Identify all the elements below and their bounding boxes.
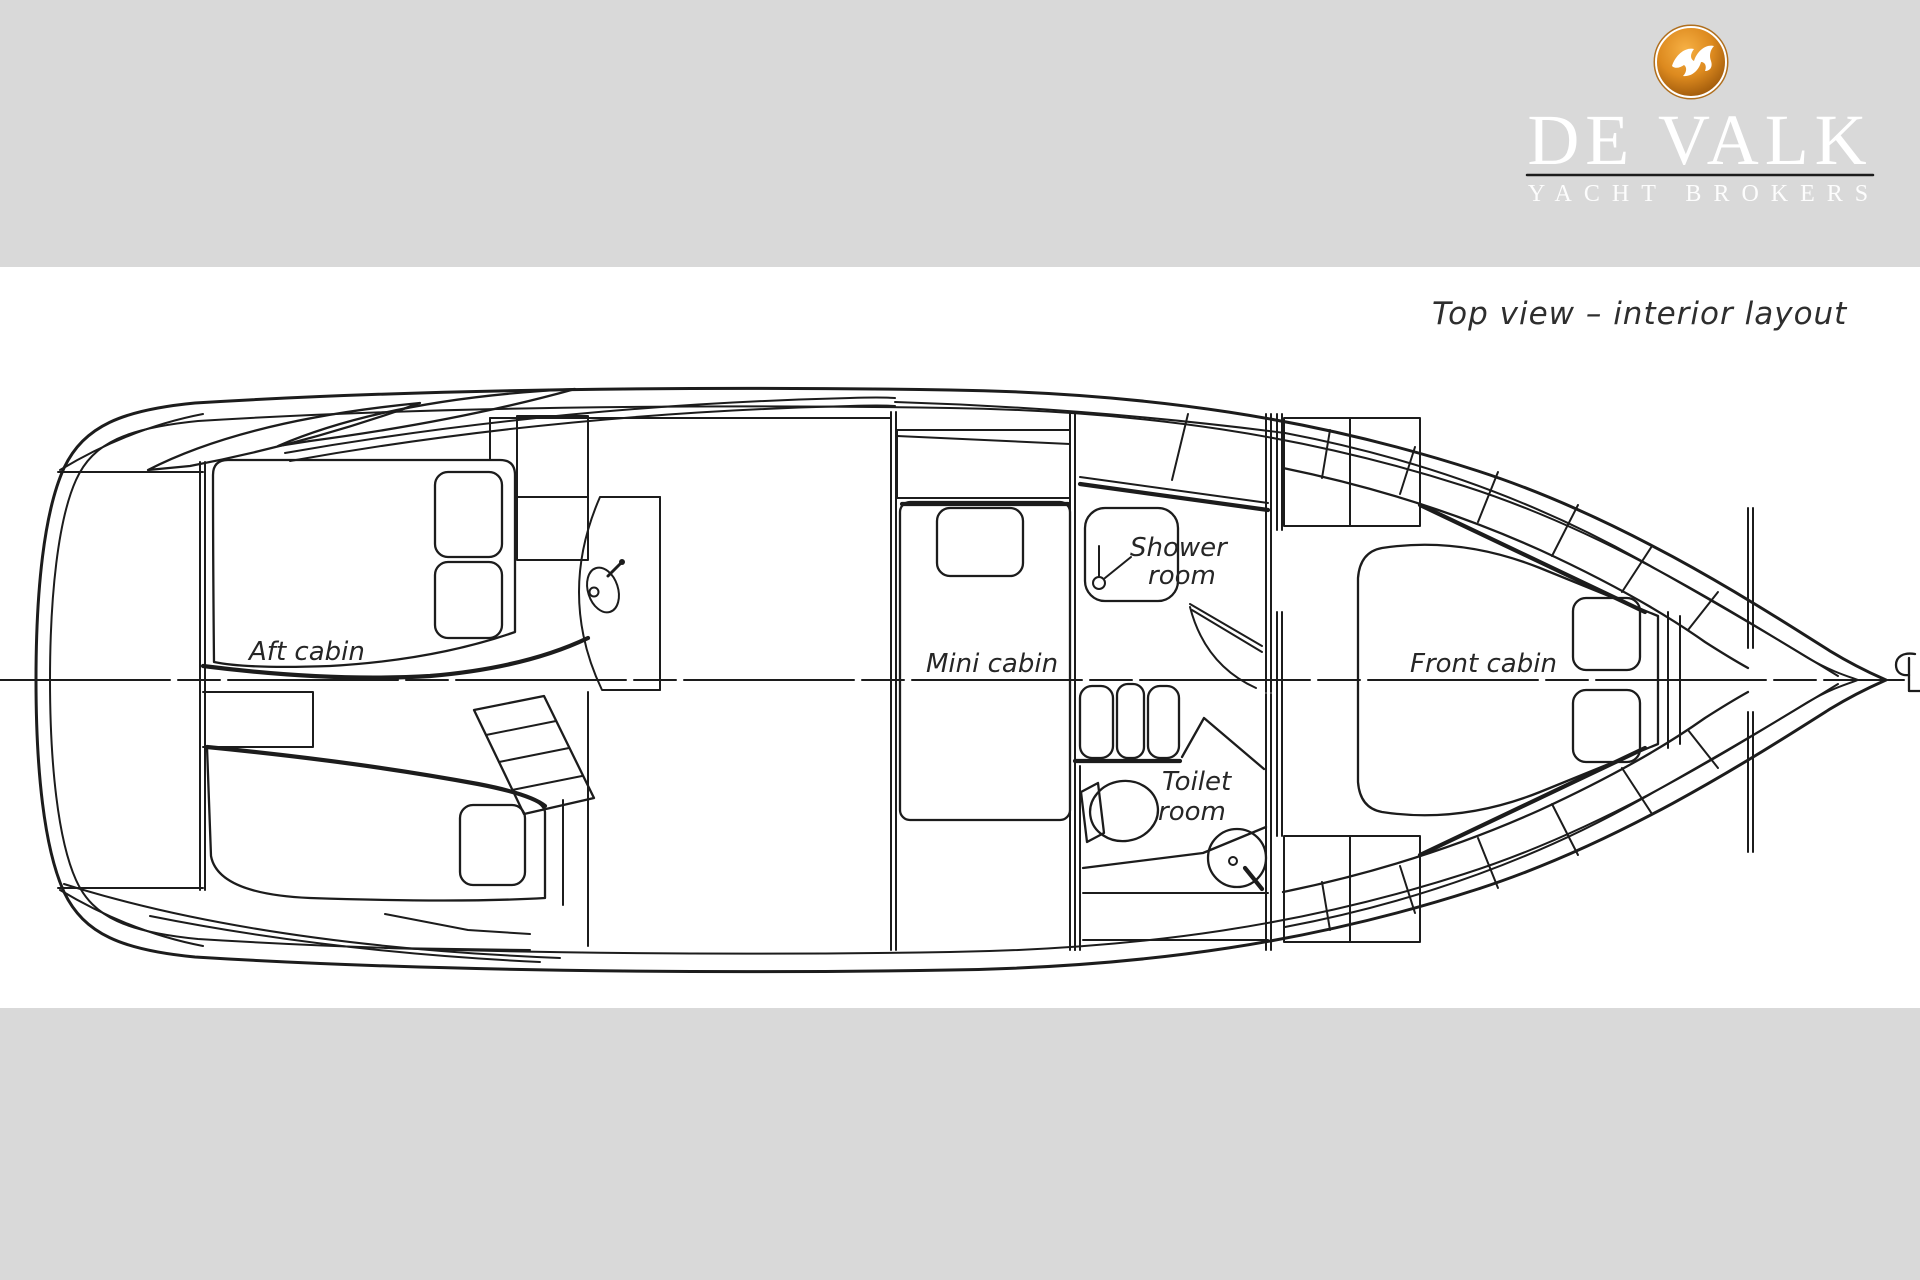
drawing-title: Top view – interior layout bbox=[1432, 296, 1848, 332]
label-front-cabin: Front cabin bbox=[1410, 649, 1557, 679]
label-toilet-room-line1: Toilet bbox=[1162, 767, 1232, 797]
yacht-layout-sheet: DE VALK YACHT BROKERS Top view – interio… bbox=[0, 0, 1920, 1280]
label-shower-room-line1: Shower bbox=[1130, 533, 1229, 563]
bottom-gray-band bbox=[0, 1008, 1920, 1280]
label-mini-cabin: Mini cabin bbox=[926, 649, 1058, 679]
label-toilet-room-line2: room bbox=[1158, 797, 1226, 827]
brand-name: DE VALK bbox=[1527, 100, 1872, 180]
label-shower-room-line2: room bbox=[1148, 561, 1216, 591]
page: DE VALK YACHT BROKERS Top view – interio… bbox=[0, 0, 1920, 1280]
label-aft-cabin: Aft cabin bbox=[247, 637, 365, 667]
brand-tagline: YACHT BROKERS bbox=[1528, 181, 1880, 207]
